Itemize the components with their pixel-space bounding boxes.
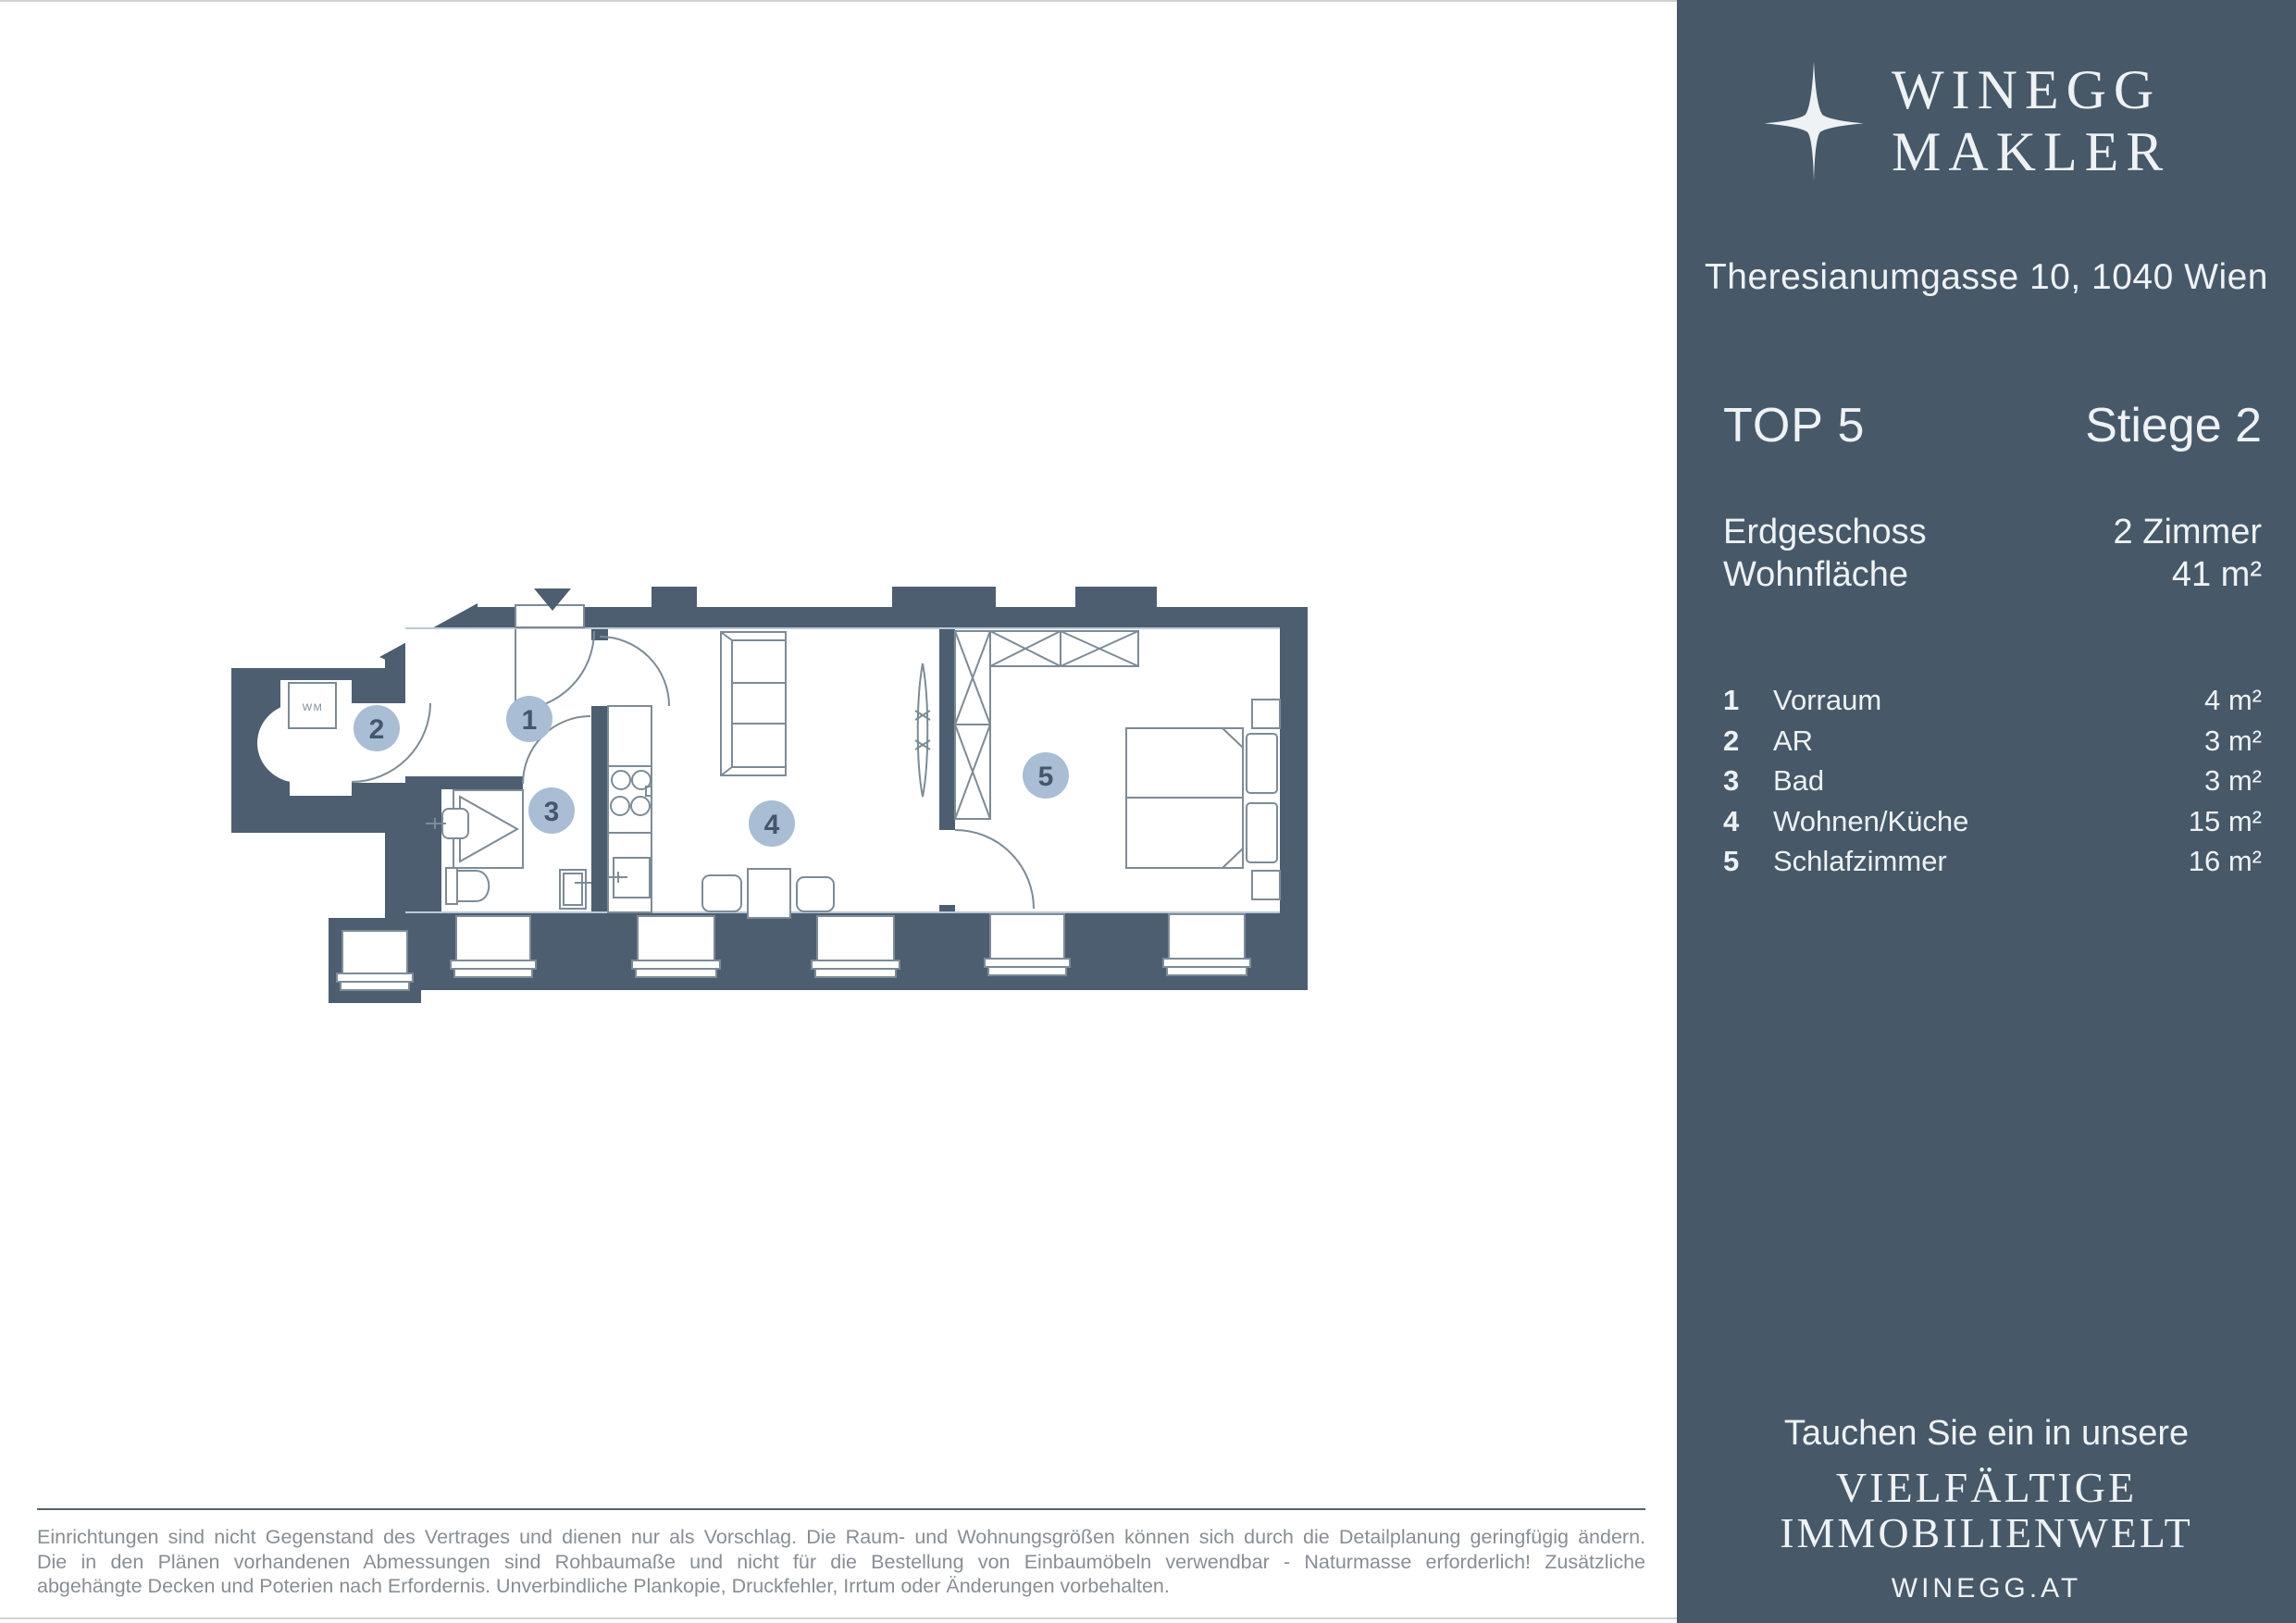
room-number: 5	[1723, 841, 1773, 882]
sofa	[721, 632, 786, 775]
dining-table	[748, 869, 790, 918]
unit-details: Erdgeschoss 2 Zimmer Wohnfläche 41 m²	[1723, 511, 2262, 596]
room-name: Vorraum	[1773, 680, 2204, 721]
living-area-value: 41 m²	[2172, 553, 2262, 596]
nightstand	[1252, 871, 1280, 899]
room-row: 2 AR 3 m²	[1723, 721, 2262, 762]
room-area: 15 m²	[2189, 801, 2262, 842]
brand-name: WINEGG MAKLER	[1892, 59, 2170, 183]
room-list: 1 Vorraum 4 m² 2 AR 3 m² 3 Bad 3 m² 4 Wo…	[1723, 680, 2262, 882]
footer-highlight-line2: IMMOBILIENWELT	[1677, 1508, 2296, 1557]
room-area: 3 m²	[2204, 721, 2262, 762]
room-row: 4 Wohnen/Küche 15 m²	[1723, 801, 2262, 842]
room-name: Bad	[1773, 761, 2204, 801]
disclaimer: Einrichtungen sind nicht Gegenstand des …	[37, 1525, 1645, 1599]
room-badge-4: 4	[749, 800, 795, 847]
pillow	[1247, 803, 1277, 862]
living-area-row: Wohnfläche 41 m²	[1723, 553, 2262, 596]
toilet	[446, 868, 489, 904]
svg-text:4: 4	[764, 810, 780, 840]
footer-website: WINEGG.AT	[1677, 1573, 2296, 1604]
room-badge-3: 3	[528, 787, 575, 834]
brand-logo: WINEGG MAKLER	[1760, 59, 2170, 183]
floor-label: Erdgeschoss	[1723, 511, 1927, 553]
wm-label: WM	[303, 702, 324, 713]
room-name: AR	[1773, 721, 2204, 762]
floor-value: 2 Zimmer	[2114, 511, 2262, 553]
staircase-label: Stiege 2	[2085, 398, 2262, 453]
disclaimer-line-2: Die in den Plänen vorhandenen Abmessunge…	[37, 1550, 1645, 1575]
entrance-opening	[515, 605, 584, 627]
room-number: 1	[1723, 680, 1773, 721]
pillow	[1247, 734, 1277, 793]
room-row: 3 Bad 3 m²	[1723, 761, 2262, 801]
bath-top-wall	[441, 776, 523, 789]
kitchen-unit	[608, 706, 652, 912]
room-badge-2: 2	[354, 705, 400, 751]
svg-text:5: 5	[1038, 762, 1054, 792]
kitchen-wall	[591, 706, 608, 912]
svg-text:1: 1	[522, 705, 538, 736]
footer-highlight-line1: VIELFÄLTIGE	[1677, 1463, 2296, 1512]
room-area: 16 m²	[2189, 841, 2262, 882]
room-name: Schlafzimmer	[1773, 841, 2189, 882]
brand-name-line2: MAKLER	[1892, 121, 2170, 183]
disclaimer-line-1: Einrichtungen sind nicht Gegenstand des …	[37, 1525, 1645, 1550]
room-name: Wohnen/Küche	[1773, 801, 2189, 842]
room-divider-wall	[939, 627, 955, 830]
wash-basin	[560, 870, 591, 909]
chair	[702, 875, 741, 911]
brand-name-line1: WINEGG	[1892, 59, 2170, 121]
room-area: 3 m²	[2204, 761, 2262, 801]
floor-plan-drawing: WM 1 2 3 4 5	[204, 564, 1351, 1027]
room-number: 4	[1723, 801, 1773, 842]
room-number: 2	[1723, 721, 1773, 762]
bath-left-wall	[405, 776, 441, 912]
room-row: 1 Vorraum 4 m²	[1723, 680, 2262, 721]
footer-tagline: Tauchen Sie ein in unsere	[1677, 1414, 2296, 1454]
sidebar: WINEGG MAKLER Theresianumgasse 10, 1040 …	[1677, 0, 2296, 1623]
disclaimer-line-3: abgehängte Decken und Poterien nach Erfo…	[37, 1574, 1645, 1599]
four-point-star-icon	[1760, 61, 1868, 181]
floor-plan: WM 1 2 3 4 5	[204, 564, 1351, 1027]
unit-row: TOP 5 Stiege 2	[1723, 398, 2262, 453]
nightstand	[1252, 700, 1280, 728]
floor-row: Erdgeschoss 2 Zimmer	[1723, 511, 2262, 553]
chair	[797, 877, 834, 911]
svg-text:3: 3	[544, 797, 560, 827]
room-badge-1: 1	[506, 696, 552, 742]
unit-label: TOP 5	[1723, 398, 1865, 453]
room-area: 4 m²	[2204, 680, 2262, 721]
property-address: Theresianumgasse 10, 1040 Wien	[1677, 257, 2296, 298]
room-row: 5 Schlafzimmer 16 m²	[1723, 841, 2262, 882]
room-badge-5: 5	[1023, 752, 1069, 799]
svg-text:2: 2	[369, 714, 385, 745]
floorplan-datasheet: { "brand": { "name_line1": "WINEGG", "na…	[0, 0, 2296, 1623]
room-number: 3	[1723, 761, 1773, 801]
disclaimer-divider	[37, 1508, 1645, 1510]
living-area-label: Wohnfläche	[1723, 553, 1908, 596]
